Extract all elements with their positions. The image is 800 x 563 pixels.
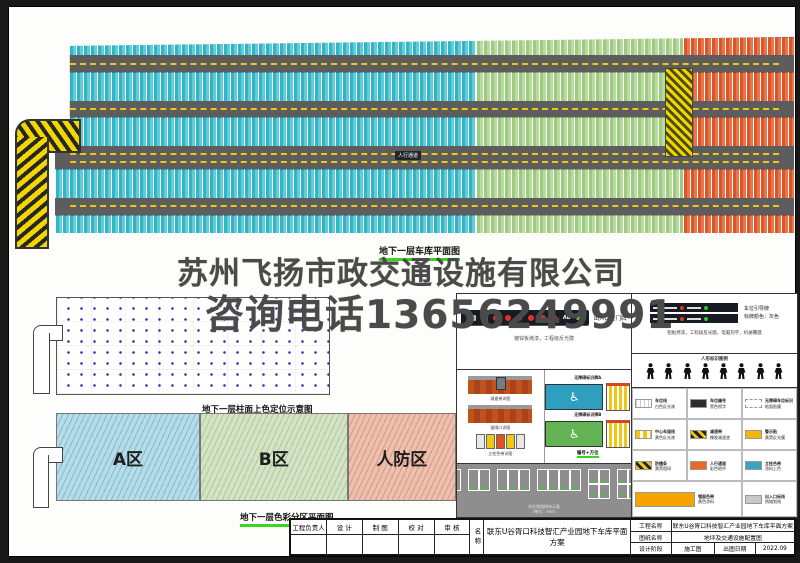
legend-item: 出入口标线热熔划线 <box>742 481 797 517</box>
name-label: 名称 <box>470 520 484 554</box>
install-detail-columns: 减速带详图 道闸口详图 立柱色带详图 无障碍标识牌A <box>457 370 631 463</box>
legend-item: 墙面色带黄色涂料 <box>632 481 742 517</box>
garage-floor-plan: 人行通道 <box>55 37 794 233</box>
arrow-dash-icon <box>687 318 701 320</box>
legend-swatch <box>745 399 762 408</box>
titleblock-col-value <box>327 535 362 554</box>
board-note: 编号+方位 <box>577 450 599 458</box>
drawing-paper: 人行通道 地下一层车库平面图 苏州飞扬市政交通设施有限公司 咨询电话136562 <box>8 6 796 557</box>
lane-marking <box>70 63 779 65</box>
legend-swatch <box>635 430 652 439</box>
legend-item: 人行通道彩色地坪 <box>687 450 742 481</box>
person-icon <box>736 363 747 380</box>
column-band-swatch <box>476 434 485 449</box>
stall-row <box>588 469 610 484</box>
stall-outline <box>519 469 530 491</box>
legend-grid: 车位线白色反光漆 车位编号黑色喷字 无障碍车位标识地面贴膜 中心车道线黄色反光漆 <box>632 388 797 517</box>
column-band-swatch <box>516 434 525 449</box>
stall-segment-teal <box>55 37 476 55</box>
stall-double-group <box>617 469 633 499</box>
project-name-value: 联东U谷胥口科技智汇产业园地下车库平面方案 <box>672 520 794 531</box>
legend-item: 立柱色带涂料上色 <box>742 450 797 481</box>
legend-text: 车位编号黑色喷字 <box>710 398 726 408</box>
legend-swatch <box>690 399 707 408</box>
stage-label: 设计阶段 <box>631 543 672 554</box>
stall-row <box>588 484 610 499</box>
watermark-phone: 咨询电话13656249991 <box>205 284 675 340</box>
zone-a: A区 <box>56 413 200 501</box>
legend-swatch <box>745 430 762 439</box>
title-block: 工程负责人 设 计 制 图 校 对 审 核 名称 联东U谷胥口科技智汇产业园地下… <box>289 518 796 556</box>
stall-outline <box>588 484 599 499</box>
red-indicator-icon <box>680 317 684 321</box>
titleblock-col-label: 审 核 <box>435 520 470 535</box>
titleblock-column: 校 对 <box>399 520 435 554</box>
lane-marking <box>70 205 779 207</box>
legend-text: 墙面色带黄色涂料 <box>698 494 714 504</box>
stall-segment-red <box>683 169 794 198</box>
titleblock-col-value <box>363 535 398 554</box>
legend-text: 警示贴黄黑反光膜 <box>765 429 785 439</box>
stall-segment-red <box>683 72 794 101</box>
drawing-sheet-stage: 人行通道 地下一层车库平面图 苏州飞扬市政交通设施有限公司 咨询电话136562 <box>0 0 800 563</box>
legend-swatch <box>690 430 707 439</box>
color-zoning-plan: A区 B区 人防区 <box>56 413 456 501</box>
stall-segment-red <box>683 37 794 55</box>
legend-text: 中心车道线黄色反光漆 <box>655 429 675 439</box>
pictogram-row <box>632 362 797 380</box>
wheelchair-icon: ♿ <box>569 390 580 404</box>
legend-item: 车位线白色反光漆 <box>632 388 687 419</box>
stall-segment-green <box>476 117 683 146</box>
legend-text: 人行通道彩色地坪 <box>710 461 726 471</box>
legend-item: 中心车道线黄色反光漆 <box>632 419 687 450</box>
lane-marking <box>70 161 779 163</box>
board-header: 无障碍标识牌B <box>574 412 601 418</box>
legend-text: 出入口标线热熔划线 <box>765 494 785 504</box>
titleblock-col-value <box>291 535 326 554</box>
stall-outline <box>617 484 628 499</box>
stall-strip-diagram <box>606 383 630 411</box>
wheelchair-icon: ♿ <box>569 427 580 441</box>
person-icon <box>755 363 766 380</box>
stall-group-4 <box>537 469 581 491</box>
stall-strip-diagram <box>606 420 630 448</box>
stall-band <box>55 169 794 198</box>
stall-row <box>617 469 633 484</box>
legend-item: 车位编号黑色喷字 <box>687 388 742 419</box>
guide-sign-note: 标牌颜色：灰色 <box>744 313 779 321</box>
road-section-caption: 减速带详图 <box>490 396 510 402</box>
stall-outline <box>497 469 508 491</box>
guide-sign-text: 车位引导牌 标牌颜色：灰色 <box>744 305 779 321</box>
stall-outline <box>508 469 519 491</box>
stall-outline <box>559 469 570 491</box>
column-band-swatch <box>486 434 495 449</box>
person-icon <box>773 363 784 380</box>
drawing-name-label: 图纸名称 <box>631 532 672 543</box>
legend-swatch <box>690 461 707 470</box>
person-icon <box>663 363 674 380</box>
legend-item: 防撞条黄黑相间 <box>632 450 687 481</box>
install-detail-panel: 减速带详图 道闸口详图 立柱色带详图 无障碍标识牌A <box>456 369 632 464</box>
legend-swatch <box>635 461 652 470</box>
person-icon <box>718 363 729 380</box>
internal-ramp-hatch <box>665 68 694 156</box>
stall-outline <box>479 469 490 491</box>
legend-text: 无障碍车位标识地面贴膜 <box>765 398 793 408</box>
pedestrian-walk-label: 人行通道 <box>395 151 421 160</box>
titleblock-row: 图纸名称 地坪及交通设施配置图 <box>631 532 794 544</box>
titleblock-col-label: 工程负责人 <box>291 520 326 535</box>
road-section-caption: 道闸口详图 <box>490 425 510 431</box>
stall-outline <box>548 469 559 491</box>
titleblock-column: 审 核 <box>435 520 471 554</box>
column-band-caption: 立柱色带详图 <box>488 451 512 457</box>
date-label: 出图日期 <box>715 543 756 554</box>
stall-outline <box>570 469 581 491</box>
project-name-label: 工程名称 <box>631 520 672 531</box>
titleblock-row: 工程名称 联东U谷胥口科技智汇产业园地下车库平面方案 <box>631 520 794 532</box>
column-band-swatch <box>496 434 505 449</box>
titleblock-row: 设计阶段 施工图 出图日期 2022.09 <box>631 543 794 554</box>
person-icon <box>700 363 711 380</box>
board-group: ♿ <box>545 383 630 411</box>
person-icon <box>645 363 656 380</box>
titleblock-right: 工程名称 联东U谷胥口科技智汇产业园地下车库平面方案 图纸名称 地坪及交通设施配… <box>631 520 794 554</box>
legend-swatch <box>635 492 695 507</box>
stall-segment-green <box>476 215 683 233</box>
legend-item: 无障碍车位标识地面贴膜 <box>742 388 797 419</box>
stall-segment-teal <box>55 72 476 101</box>
zone-b: B区 <box>200 413 348 501</box>
legend-item: 减速带橡胶减速垄 <box>687 419 742 450</box>
legend-swatch <box>745 495 762 504</box>
accessible-sign-board-blue: ♿ <box>545 384 603 410</box>
titleblock-col-value <box>399 535 434 554</box>
pictogram-panel: 人形标识图例 <box>631 353 798 388</box>
stall-segment-red <box>683 117 794 146</box>
titleblock-col-label: 设 计 <box>327 520 362 535</box>
road-section-diagram <box>468 405 532 423</box>
stall-segment-teal <box>55 117 476 146</box>
titleblock-column: 工程负责人 <box>291 520 327 554</box>
arrow-dash-icon <box>687 307 701 309</box>
drive-aisle <box>55 198 794 215</box>
stall-band <box>55 215 794 233</box>
road-section-column: 减速带详图 道闸口详图 立柱色带详图 <box>457 370 545 463</box>
legend-text: 防撞条黄黑相间 <box>655 461 671 471</box>
stall-segment-green <box>476 72 683 101</box>
board-column: 无障碍标识牌A ♿ 无障碍标识牌B ♿ 编号+方位 <box>545 370 632 463</box>
legend-swatch <box>635 399 652 408</box>
zone-civil-defense: 人防区 <box>348 413 456 501</box>
red-indicator-icon <box>680 306 684 310</box>
stall-segment-red <box>683 215 794 233</box>
project-name: 联东U谷胥口科技智汇产业园地下车库平面方案 <box>484 520 630 554</box>
legend-text: 车位线白色反光漆 <box>655 398 675 408</box>
stall-row <box>617 484 633 499</box>
stall-outline <box>468 469 479 491</box>
board-group: ♿ <box>545 420 630 448</box>
drawing-name-value: 地坪及交通设施配置图 <box>672 532 794 543</box>
legend-text: 减速带橡胶减速垄 <box>710 429 730 439</box>
stall-group-2 <box>468 469 490 491</box>
stall-outline <box>588 469 599 484</box>
legend-panel: 车位线白色反光漆 车位编号黑色喷字 无障碍车位标识地面贴膜 中心车道线黄色反光漆 <box>631 387 798 518</box>
date-value: 2022.09 <box>756 543 794 554</box>
stall-panel-caption: 车位划线排布示意 （单位：mm） <box>457 504 631 515</box>
accessible-sign-board-green: ♿ <box>545 421 603 447</box>
stall-groups <box>457 464 631 499</box>
legend-text: 立柱色带涂料上色 <box>765 461 781 471</box>
board-header: 无障碍标识牌A <box>574 375 601 381</box>
stall-outline <box>599 469 610 484</box>
person-icon <box>682 363 693 380</box>
stall-band <box>55 37 794 55</box>
green-indicator-icon <box>704 317 708 321</box>
titleblock-column: 制 图 <box>363 520 399 554</box>
stall-outline <box>456 469 461 491</box>
titleblock-col-label: 校 对 <box>399 520 434 535</box>
green-indicator-icon <box>704 306 708 310</box>
stall-group-3 <box>497 469 530 491</box>
stall-striping-panel: 车位划线排布示意 （单位：mm） <box>456 463 632 518</box>
stall-segment-green <box>476 37 683 55</box>
stall-segment-teal <box>55 215 476 233</box>
column-band-swatch <box>506 434 515 449</box>
stall-double-group <box>588 469 610 499</box>
legend-swatch <box>745 461 762 470</box>
stage-value: 施工图 <box>672 543 715 554</box>
stall-outline <box>617 469 628 484</box>
road-section-diagram <box>468 376 532 394</box>
column-band-diagram <box>476 434 525 449</box>
guide-sign-title: 车位引导牌 <box>744 305 779 313</box>
stall-caption-line2: （单位：mm） <box>530 509 558 514</box>
stall-outline <box>599 484 610 499</box>
titleblock-col-value <box>435 535 470 554</box>
titleblock-column: 设 计 <box>327 520 363 554</box>
ramp-outline-leg <box>33 333 50 394</box>
titleblock-col-label: 制 图 <box>363 520 398 535</box>
stall-group-1 <box>456 469 461 491</box>
stall-outline <box>537 469 548 491</box>
legend-item: 警示贴黄黑反光膜 <box>742 419 797 450</box>
stall-segment-green <box>476 169 683 198</box>
stall-segment-teal <box>55 169 476 198</box>
entrance-ramp-leg <box>15 137 49 249</box>
road-post-icon <box>496 377 506 390</box>
ramp-outline-leg <box>33 455 49 508</box>
